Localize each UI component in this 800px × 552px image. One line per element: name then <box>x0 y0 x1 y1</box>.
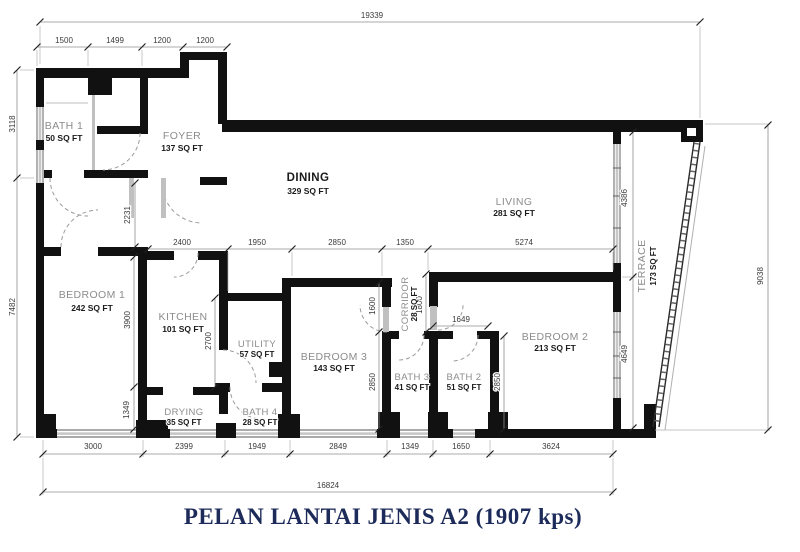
room-area-bath2: 51 SQ FT <box>447 383 482 392</box>
plan-title: PELAN LANTAI JENIS A2 (1907 kps) <box>184 504 582 529</box>
bath1-slider <box>92 95 95 170</box>
dim-bottom-4: 2849 <box>329 442 347 451</box>
room-area-dining: 329 SQ FT <box>287 186 329 196</box>
room-label-foyer: FOYER <box>163 130 201 142</box>
closet-door-arc <box>103 133 140 170</box>
room-label-dining: DINING <box>287 172 330 184</box>
room-area-bedroom3: 143 SQ FT <box>313 363 355 373</box>
room-area-terrace: 173 SQ FT <box>649 246 658 285</box>
dim-mid-5: 5274 <box>515 238 533 247</box>
room-area-bedroom1: 242 SQ FT <box>71 303 113 313</box>
room-area-bath4: 28 SQ FT <box>243 418 278 427</box>
dim-terrace-2: 4649 <box>620 345 629 363</box>
room-area-corridor: 28 SQ FT <box>410 287 419 322</box>
dim-mid-2: 1950 <box>248 238 266 247</box>
window-bath3 <box>400 429 428 438</box>
room-label-utility: UTILITY <box>238 339 276 350</box>
dim-utility-height: 2700 <box>204 332 213 350</box>
room-label-bath3: BATH 3 <box>395 372 430 383</box>
dim-mid-3: 2850 <box>328 238 346 247</box>
dim-kitchen-height: 3900 <box>123 311 132 329</box>
dim-left-1: 3118 <box>8 115 17 133</box>
terrace-glazed-wall <box>653 142 705 430</box>
room-label-bedroom3: BEDROOM 3 <box>301 351 368 363</box>
room-area-kitchen: 101 SQ FT <box>162 324 204 334</box>
bath2-door-arc <box>452 335 478 361</box>
room-label-living: LIVING <box>496 196 533 208</box>
room-area-bath3: 41 SQ FT <box>395 383 430 392</box>
room-label-bedroom1: BEDROOM 1 <box>59 289 126 301</box>
dim-mid-4: 1350 <box>396 238 414 247</box>
dim-top-1: 1500 <box>55 36 73 45</box>
dim-bottom-6: 1650 <box>452 442 470 451</box>
dim-bottom-1: 3000 <box>84 442 102 451</box>
room-area-living: 281 SQ FT <box>493 208 535 218</box>
room-area-foyer: 137 SQ FT <box>161 143 203 153</box>
dim-bedroom3-door: 1600 <box>368 297 377 315</box>
foyer-door-arc <box>162 183 202 223</box>
dim-mid-1: 2400 <box>173 238 191 247</box>
window-bath2 <box>453 429 475 438</box>
room-area-bedroom2: 213 SQ FT <box>534 343 576 353</box>
dim-bottom-total: 16824 <box>317 481 340 490</box>
dim-top-total: 19339 <box>361 11 384 20</box>
dim-bedroom2-entry: 1649 <box>452 315 470 324</box>
room-label-bath1: BATH 1 <box>45 120 83 132</box>
floor-plan-canvas: 19339 1500 1499 1200 1200 3118 7482 2400… <box>0 0 800 552</box>
dim-terrace-1: 4386 <box>620 189 629 207</box>
bath3-door-arc <box>399 335 424 360</box>
room-label-bath4: BATH 4 <box>243 407 278 418</box>
room-label-bedroom2: BEDROOM 2 <box>522 331 589 343</box>
room-label-bath2: BATH 2 <box>447 372 482 383</box>
dim-bottom-7: 3624 <box>542 442 560 451</box>
window-hall-left <box>36 150 44 183</box>
dim-bottom-2: 2399 <box>175 442 193 451</box>
dim-top-2: 1499 <box>106 36 124 45</box>
kitchen-door-arc <box>174 253 198 277</box>
dim-bath2-height: 2850 <box>493 373 502 391</box>
dim-bottom-3: 1949 <box>248 442 266 451</box>
room-area-bath1: 50 SQ FT <box>46 133 84 143</box>
dim-bottom-5: 1349 <box>401 442 419 451</box>
dim-bath3-height: 2850 <box>368 373 377 391</box>
dim-top-3: 1200 <box>153 36 171 45</box>
dim-left-2: 7482 <box>8 298 17 316</box>
dim-drying-height: 1349 <box>122 401 131 419</box>
window-drying <box>170 429 216 438</box>
room-area-utility: 57 SQ FT <box>240 350 275 359</box>
dim-hall-height: 2231 <box>123 206 132 224</box>
window-bedroom1 <box>57 429 136 438</box>
dim-top-4: 1200 <box>196 36 214 45</box>
bath1-door-arc <box>50 178 88 216</box>
dim-right-total: 9038 <box>756 267 765 285</box>
window-bath4 <box>236 429 278 438</box>
room-label-drying: DRYING <box>164 407 203 418</box>
window-bath1-left <box>36 107 44 140</box>
room-label-kitchen: KITCHEN <box>159 311 208 323</box>
window-bedroom3 <box>300 429 377 438</box>
hall-cabinet-right <box>161 178 166 218</box>
floor-plan-page: 19339 1500 1499 1200 1200 3118 7482 2400… <box>0 0 800 552</box>
room-label-terrace: TERRACE <box>636 240 648 293</box>
bedroom3-door-leaf <box>383 307 389 332</box>
room-area-drying: 35 SQ FT <box>167 418 202 427</box>
